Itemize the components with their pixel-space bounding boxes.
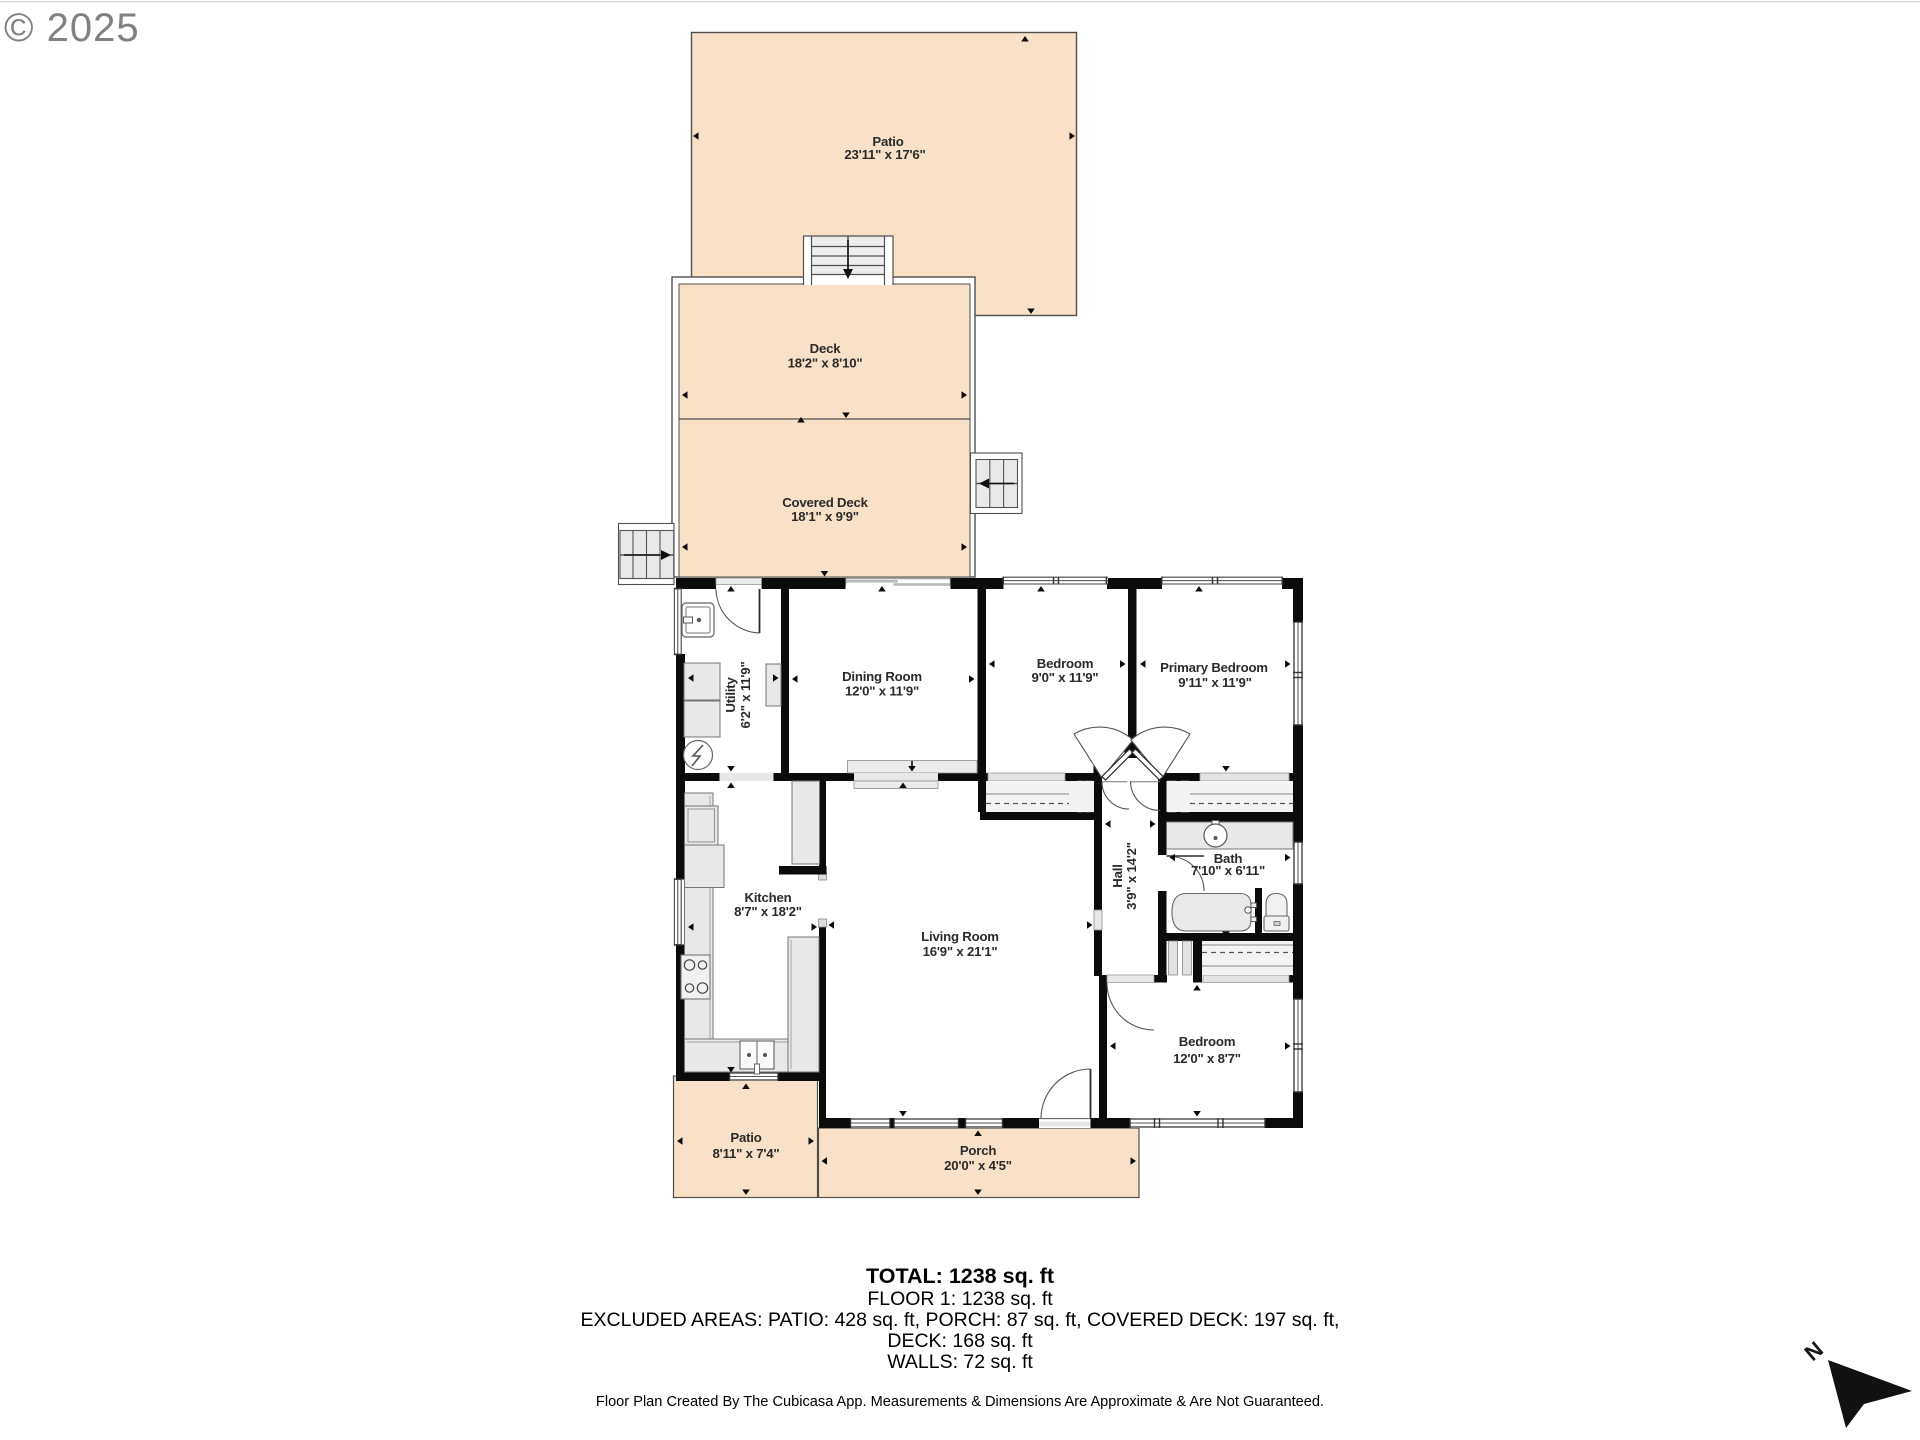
svg-text:12'0" x 11'9": 12'0" x 11'9" [845,684,919,699]
svg-text:Bedroom: Bedroom [1179,1034,1235,1049]
svg-text:7'10" x 6'11": 7'10" x 6'11" [1191,863,1265,878]
svg-text:Hall: Hall [1110,864,1125,887]
svg-text:Patio: Patio [730,1130,761,1145]
svg-text:FLOOR 1: 1238 sq. ft: FLOOR 1: 1238 sq. ft [867,1288,1053,1310]
svg-text:Utility: Utility [723,677,738,713]
svg-text:Living Room: Living Room [921,929,999,944]
svg-text:Kitchen: Kitchen [745,890,792,905]
svg-text:Porch: Porch [960,1143,997,1158]
svg-text:6'2" x 11'9": 6'2" x 11'9" [738,662,753,729]
svg-text:TOTAL: 1238 sq. ft: TOTAL: 1238 sq. ft [866,1264,1054,1288]
svg-text:© 2025: © 2025 [4,6,140,50]
svg-text:9'0" x 11'9": 9'0" x 11'9" [1032,670,1099,685]
svg-text:Deck: Deck [810,341,842,356]
svg-text:DECK: 168 sq. ft: DECK: 168 sq. ft [887,1330,1033,1352]
svg-text:Dining Room: Dining Room [842,669,922,684]
svg-text:8'11" x 7'4": 8'11" x 7'4" [713,1146,780,1161]
svg-text:20'0" x 4'5": 20'0" x 4'5" [944,1158,1012,1173]
svg-text:3'9" x 14'2": 3'9" x 14'2" [1124,842,1139,910]
svg-text:12'0" x 8'7": 12'0" x 8'7" [1173,1051,1241,1066]
svg-text:EXCLUDED AREAS: PATIO: 428 sq.: EXCLUDED AREAS: PATIO: 428 sq. ft, PORCH… [581,1309,1340,1331]
svg-text:18'1" x 9'9": 18'1" x 9'9" [791,509,859,524]
svg-text:WALLS: 72 sq. ft: WALLS: 72 sq. ft [887,1351,1033,1373]
svg-text:Covered Deck: Covered Deck [782,495,868,510]
svg-text:8'7" x 18'2": 8'7" x 18'2" [734,904,802,919]
svg-text:Floor Plan Created By The Cubi: Floor Plan Created By The Cubicasa App. … [596,1394,1324,1410]
svg-text:18'2" x 8'10": 18'2" x 8'10" [788,356,863,371]
svg-text:23'11" x 17'6": 23'11" x 17'6" [844,147,925,162]
svg-text:Primary Bedroom: Primary Bedroom [1160,660,1268,675]
svg-text:16'9" x 21'1": 16'9" x 21'1" [923,944,998,959]
svg-text:9'11" x 11'9": 9'11" x 11'9" [1178,675,1251,690]
svg-text:Bedroom: Bedroom [1037,656,1093,671]
